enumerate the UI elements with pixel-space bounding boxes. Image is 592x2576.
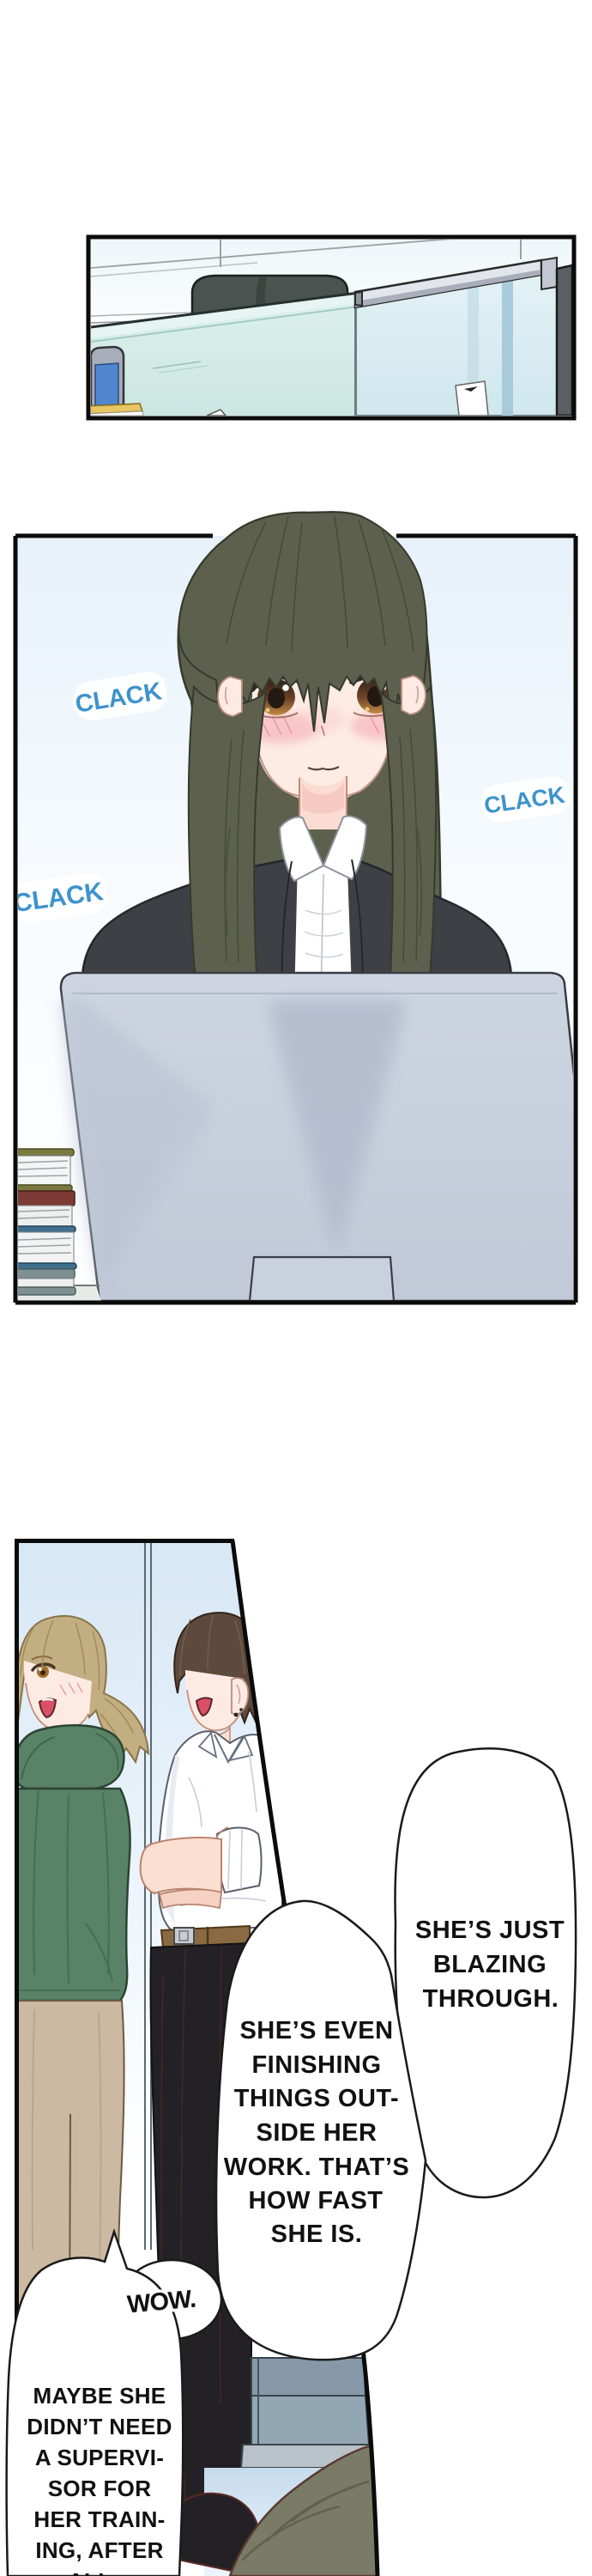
svg-text:ALL...: ALL... <box>68 2568 131 2576</box>
svg-text:THINGS OUT-: THINGS OUT- <box>234 2085 399 2112</box>
svg-text:SOR FOR: SOR FOR <box>48 2476 152 2501</box>
svg-text:HOW FAST: HOW FAST <box>248 2187 383 2215</box>
svg-text:SIDE HER: SIDE HER <box>257 2119 378 2147</box>
svg-text:DIDN’T NEED: DIDN’T NEED <box>27 2414 172 2439</box>
svg-text:THROUGH.: THROUGH. <box>423 1985 559 2013</box>
svg-text:MAYBE SHE: MAYBE SHE <box>33 2383 166 2409</box>
svg-text:SHE’S JUST: SHE’S JUST <box>415 1917 565 1944</box>
svg-text:SHE’S EVEN: SHE’S EVEN <box>239 2017 393 2044</box>
svg-text:A SUPERVI-: A SUPERVI- <box>35 2445 164 2470</box>
svg-text:HER TRAIN-: HER TRAIN- <box>33 2506 165 2532</box>
svg-text:WORK. THAT’S: WORK. THAT’S <box>224 2154 410 2181</box>
svg-text:ING, AFTER: ING, AFTER <box>35 2537 163 2563</box>
svg-text:BLAZING: BLAZING <box>433 1951 547 1978</box>
svg-text:SHE IS.: SHE IS. <box>271 2221 363 2248</box>
svg-text:FINISHING: FINISHING <box>251 2051 381 2079</box>
